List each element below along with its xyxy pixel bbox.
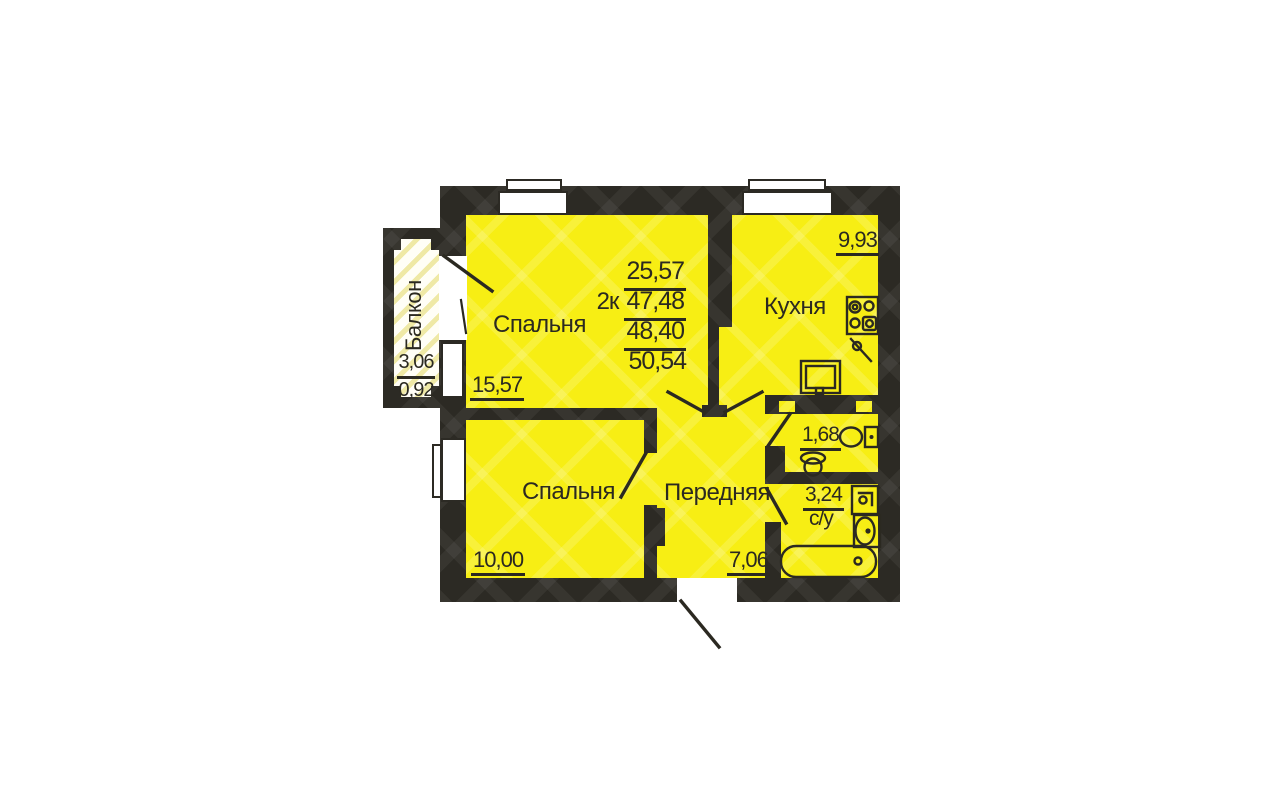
- room-area-wc: 1,68: [800, 424, 841, 451]
- entrance-door-opening: [677, 578, 737, 602]
- balcony-corner-notch: [431, 239, 439, 250]
- room-area-bedroom-bottom: 10,00: [471, 548, 525, 576]
- window-icon: [748, 179, 826, 191]
- wall-kitchen-west: [708, 215, 732, 327]
- room-area-kitchen: 9,93: [836, 228, 879, 256]
- window-icon: [506, 179, 562, 191]
- apartment-summary: 25,57 2к47,48 48,40 50,54: [584, 257, 686, 377]
- bedroom-bottom-door-gap: [644, 453, 657, 505]
- floor-plan-canvas: Спальня 15,57 25,57 2к47,48 48,40 50,54 …: [0, 0, 1280, 789]
- balcony-area-full: 3,06: [389, 351, 443, 379]
- room-label-hallway: Передняя: [664, 480, 770, 505]
- window-icon: [441, 438, 466, 502]
- balcony-areas: 3,06 0,92: [389, 351, 443, 402]
- summary-total-area: 50,54: [584, 347, 686, 377]
- room-label-bedroom-top: Спальня: [493, 312, 586, 337]
- room-area-hallway: 7,06: [727, 548, 770, 576]
- summary-area-47: 47,48: [624, 287, 686, 321]
- duct-notch: [779, 401, 795, 412]
- summary-living-area: 25,57: [584, 257, 686, 287]
- balcony-corner-notch: [394, 239, 401, 250]
- summary-area-48: 48,40: [584, 317, 686, 347]
- window-icon: [742, 191, 833, 215]
- wall-pier: [657, 508, 665, 546]
- room-label-balcony: Балкон: [401, 247, 431, 351]
- balcony-area-reduced: 0,92: [389, 379, 443, 402]
- room-label-kitchen: Кухня: [764, 294, 826, 319]
- wall-junction-post: [702, 405, 727, 417]
- balcony-door-opening: [439, 256, 467, 340]
- wc-door-gap: [765, 414, 785, 446]
- window-icon: [498, 191, 568, 215]
- room-area-bedroom-top: 15,57: [470, 373, 524, 401]
- rooms-count-label: 2к: [597, 288, 619, 315]
- room-label-bathroom: с/у: [809, 508, 833, 530]
- duct-notch: [856, 401, 872, 412]
- room-label-bedroom-bottom: Спальня: [522, 479, 615, 504]
- window-icon: [441, 342, 464, 398]
- summary-area-row: 2к47,48: [584, 287, 686, 317]
